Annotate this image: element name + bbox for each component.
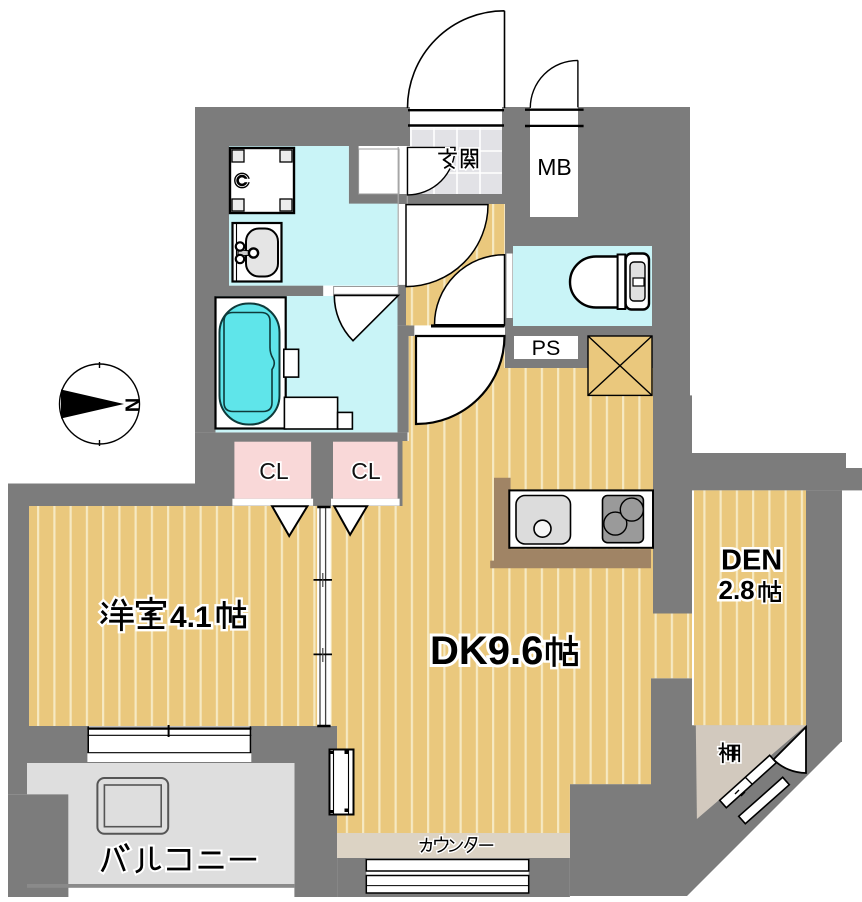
- svg-text:N: N: [121, 398, 143, 412]
- svg-text:PS: PS: [532, 336, 561, 360]
- svg-text:2.8: 2.8: [719, 575, 755, 605]
- svg-text:CL: CL: [351, 458, 381, 484]
- svg-text:CL: CL: [259, 458, 289, 484]
- svg-text:DK9.6: DK9.6: [430, 629, 543, 673]
- svg-text:MB: MB: [537, 154, 572, 180]
- svg-text:DEN: DEN: [721, 545, 782, 577]
- svg-text:4.1: 4.1: [170, 601, 212, 634]
